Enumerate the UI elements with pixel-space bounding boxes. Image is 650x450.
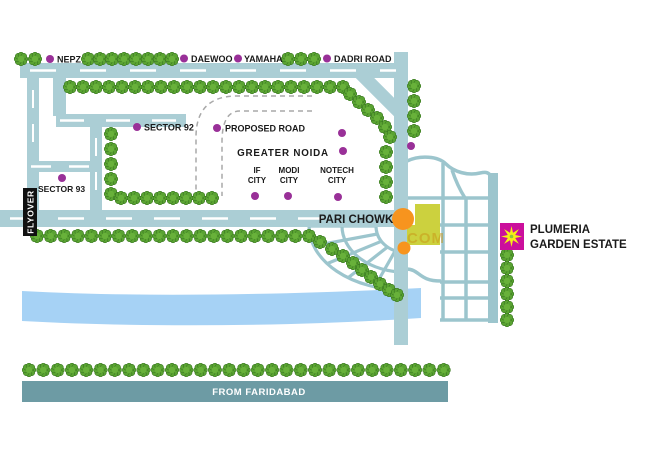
tree-icon [289, 229, 303, 243]
tree-icon [193, 80, 207, 94]
tree-icon [258, 80, 272, 94]
tree-icon [14, 52, 28, 66]
tree-icon [307, 52, 321, 66]
tree-icon [437, 363, 451, 377]
tree-icon [351, 363, 365, 377]
tree-icon [151, 363, 165, 377]
tree-icon [153, 191, 167, 205]
tree-icon [104, 157, 118, 171]
tree-icon [383, 130, 397, 144]
tree-icon [179, 191, 193, 205]
tree-icon [365, 363, 379, 377]
small-junction-circle [398, 242, 411, 255]
tree-icon [281, 52, 295, 66]
tree-icon [154, 80, 168, 94]
tree-icon [234, 229, 248, 243]
location-dot-sector-92 [133, 123, 141, 131]
proposed-road-label: PROPOSED ROAD [225, 124, 306, 134]
tree-icon [221, 229, 235, 243]
tree-icon [127, 191, 141, 205]
tree-icon [153, 229, 167, 243]
from-faridabad-label: FROM FARIDABAD [212, 387, 306, 398]
tree-icon [129, 52, 143, 66]
tree-icon [280, 363, 294, 377]
daewoo-label: DAEWOO [191, 54, 233, 64]
watermark-text: COM [407, 230, 445, 247]
tree-icon [261, 229, 275, 243]
tree-icon [117, 52, 131, 66]
tree-icon [104, 127, 118, 141]
tree-icon [248, 229, 262, 243]
if-city-label-line1: IF [253, 166, 260, 175]
tree-icon [141, 80, 155, 94]
tree-icon [140, 191, 154, 205]
estate-name-line1: PLUMERIA [530, 224, 590, 236]
tree-icon [128, 80, 142, 94]
dadri-road-label: DADRI ROAD [334, 54, 392, 64]
location-dot-daewoo [180, 55, 188, 63]
tree-icon [390, 288, 404, 302]
location-map: COM FLYOVER NEPZ DAEWOO YAMAHA DADRI ROA… [0, 0, 650, 450]
tree-icon [93, 52, 107, 66]
location-dot-unlabeled-1 [338, 129, 346, 137]
tree-icon [193, 229, 207, 243]
tree-icon [219, 80, 233, 94]
tree-icon [208, 363, 222, 377]
location-dot-proposed-road [213, 124, 221, 132]
tree-icon [310, 80, 324, 94]
tree-icon [115, 80, 129, 94]
tree-icon [407, 109, 421, 123]
tree-icon [265, 363, 279, 377]
pari-chowk-junction-circle [392, 208, 414, 230]
modi-city-label-line2: CITY [280, 176, 299, 185]
tree-icon [294, 52, 308, 66]
tree-icon [500, 313, 514, 327]
tree-icon [500, 287, 514, 301]
tree-icon [85, 229, 99, 243]
tree-icon [71, 229, 85, 243]
tree-icon [232, 80, 246, 94]
tree-icon [407, 94, 421, 108]
tree-icon [308, 363, 322, 377]
pari-chowk-label: PARI CHOWK [319, 214, 394, 226]
tree-icon [379, 160, 393, 174]
tree-icon [192, 191, 206, 205]
tree-icon [407, 124, 421, 138]
tree-icon [98, 229, 112, 243]
tree-icon [337, 363, 351, 377]
tree-icon [63, 80, 77, 94]
tree-icon [179, 363, 193, 377]
location-dot-if-city [251, 192, 259, 200]
tree-icon [322, 363, 336, 377]
notech-city-label-line2: CITY [328, 176, 347, 185]
grid-main-vertical-road [488, 173, 498, 323]
tree-icon [206, 80, 220, 94]
tree-icon [125, 229, 139, 243]
tree-icon [153, 52, 167, 66]
location-dot-unlabeled-2 [339, 147, 347, 155]
tree-icon [22, 363, 36, 377]
tree-icon [294, 363, 308, 377]
tree-icon [271, 80, 285, 94]
modi-city-label-line1: MODI [279, 166, 300, 175]
location-dot-unlabeled-3 [407, 142, 415, 150]
tree-icon [165, 363, 179, 377]
tree-icon [500, 300, 514, 314]
tree-icon [408, 363, 422, 377]
tree-icon [112, 229, 126, 243]
tree-icon [79, 363, 93, 377]
tree-icon [104, 172, 118, 186]
location-dot-modi-city [284, 192, 292, 200]
tree-icon [284, 80, 298, 94]
tree-icon [379, 190, 393, 204]
location-dot-notech-city [334, 193, 342, 201]
tree-icon [500, 274, 514, 288]
tree-icon [139, 229, 153, 243]
tree-icon [76, 80, 90, 94]
tree-icon [57, 229, 71, 243]
tree-icon [114, 191, 128, 205]
tree-icon [36, 363, 50, 377]
tree-icon [28, 52, 42, 66]
tree-icon [89, 80, 103, 94]
tree-icon [180, 229, 194, 243]
tree-icon [167, 80, 181, 94]
tree-icon [65, 363, 79, 377]
tree-icon [51, 363, 65, 377]
yamaha-label: YAMAHA [244, 54, 283, 64]
tree-icon [44, 229, 58, 243]
tree-icon [207, 229, 221, 243]
tree-icon [102, 80, 116, 94]
tree-icon [297, 80, 311, 94]
tree-icon [104, 142, 118, 156]
tree-icon [180, 80, 194, 94]
tree-icon [222, 363, 236, 377]
sector-92-label: SECTOR 92 [144, 123, 194, 133]
tree-icon [245, 80, 259, 94]
sector-93-label: SECTOR 93 [38, 184, 85, 194]
tree-icon [394, 363, 408, 377]
location-dot-dadri-road [323, 55, 331, 63]
tree-icon [205, 191, 219, 205]
location-dot-nepz [46, 55, 54, 63]
estate-badge: PLUMERIA GARDEN ESTATE [500, 223, 627, 251]
tree-icon [94, 363, 108, 377]
tree-icon [105, 52, 119, 66]
tree-icon [166, 229, 180, 243]
greater-noida-label: GREATER NOIDA [237, 148, 329, 159]
tree-icon [407, 79, 421, 93]
tree-icon [275, 229, 289, 243]
tree-icon [379, 175, 393, 189]
map-canvas: COM FLYOVER NEPZ DAEWOO YAMAHA DADRI ROA… [0, 0, 650, 450]
tree-icon [313, 235, 327, 249]
tree-icon [165, 52, 179, 66]
notech-city-label-line1: NOTECH [320, 166, 354, 175]
star-center-dot [510, 235, 514, 239]
tree-icon [423, 363, 437, 377]
tree-icon [380, 363, 394, 377]
tree-icon [237, 363, 251, 377]
flyover-label: FLYOVER [26, 190, 36, 234]
tree-icon [194, 363, 208, 377]
if-city-label-line2: CITY [248, 176, 267, 185]
tree-icon [251, 363, 265, 377]
tree-icon [137, 363, 151, 377]
tree-icon [323, 80, 337, 94]
tree-icon [108, 363, 122, 377]
tree-icon [500, 261, 514, 275]
location-dot-yamaha [234, 55, 242, 63]
tree-icon [379, 145, 393, 159]
tree-icon [166, 191, 180, 205]
tree-icon [81, 52, 95, 66]
tree-icon [500, 248, 514, 262]
location-dot-sector-93 [58, 174, 66, 182]
estate-name-line2: GARDEN ESTATE [530, 239, 627, 251]
tree-icon [122, 363, 136, 377]
nepz-label: NEPZ [57, 55, 82, 65]
river [22, 288, 421, 325]
tree-icon [141, 52, 155, 66]
